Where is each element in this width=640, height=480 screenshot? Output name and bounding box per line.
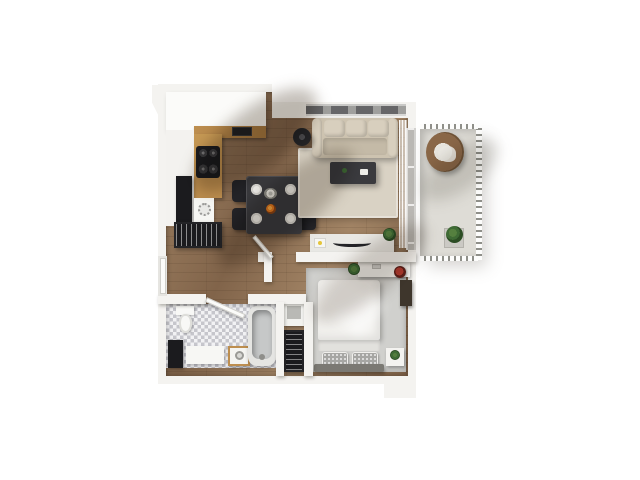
bedroom-west-wall <box>304 302 313 376</box>
fridge <box>176 176 192 222</box>
plate <box>251 213 262 224</box>
sofa-back-cushion <box>368 120 389 137</box>
desk-item <box>372 264 381 269</box>
coffee-table <box>330 162 376 184</box>
kitchen-cabinet-block <box>166 92 266 130</box>
living-room-window <box>306 104 406 116</box>
sofa-back-cushion <box>346 120 367 137</box>
desk-plant <box>348 263 360 275</box>
sheer-curtain <box>399 120 407 248</box>
kitchen-sink <box>232 127 252 136</box>
coffee-table-book <box>360 169 368 175</box>
bathroom-sink <box>196 350 207 361</box>
bed-foot-bench <box>318 340 380 351</box>
balcony-plant <box>446 226 463 243</box>
fan-icon <box>198 203 211 216</box>
sofa-armrest-left <box>312 118 322 158</box>
balcony-railing-right <box>476 126 482 260</box>
balcony-door-window <box>406 128 416 250</box>
flower-vase <box>264 188 277 199</box>
floor-lamp <box>293 128 311 146</box>
decor-box-dot <box>318 241 322 245</box>
sofa-back-cushion <box>324 120 345 137</box>
hanging-chair-cushion <box>438 146 456 162</box>
floorplan-render <box>0 0 640 480</box>
entry-door <box>160 258 166 294</box>
bathtub-faucet <box>259 354 265 360</box>
kitchen-bottle-rack <box>174 222 222 248</box>
tv <box>333 239 371 247</box>
cooktop <box>196 146 220 178</box>
sofa-seat <box>323 138 387 155</box>
sideboard-plant <box>383 228 396 241</box>
toilet <box>179 314 192 333</box>
bathtub-basin <box>252 310 272 359</box>
balcony-railing-top <box>420 124 478 129</box>
balcony-railing-bottom <box>420 256 478 261</box>
plate <box>285 184 296 195</box>
fruit-bowl <box>266 204 276 214</box>
niche-appliance-front <box>287 306 301 319</box>
coffee-table-plant <box>342 168 347 173</box>
plate <box>251 184 262 195</box>
bed-headboard <box>314 364 384 372</box>
plate <box>285 213 296 224</box>
desk-chair <box>394 266 406 278</box>
bedroom-dresser <box>400 280 412 306</box>
bathroom-black-cabinet <box>168 340 183 368</box>
bedroom-north-wall <box>296 252 416 262</box>
washing-machine-door <box>235 351 244 360</box>
niche-bottle-rack <box>284 330 304 372</box>
sofa-armrest-right <box>388 118 398 158</box>
nightstand-plant <box>390 350 400 360</box>
bathroom-east-wall <box>276 302 284 376</box>
bed-duvet <box>318 280 380 340</box>
